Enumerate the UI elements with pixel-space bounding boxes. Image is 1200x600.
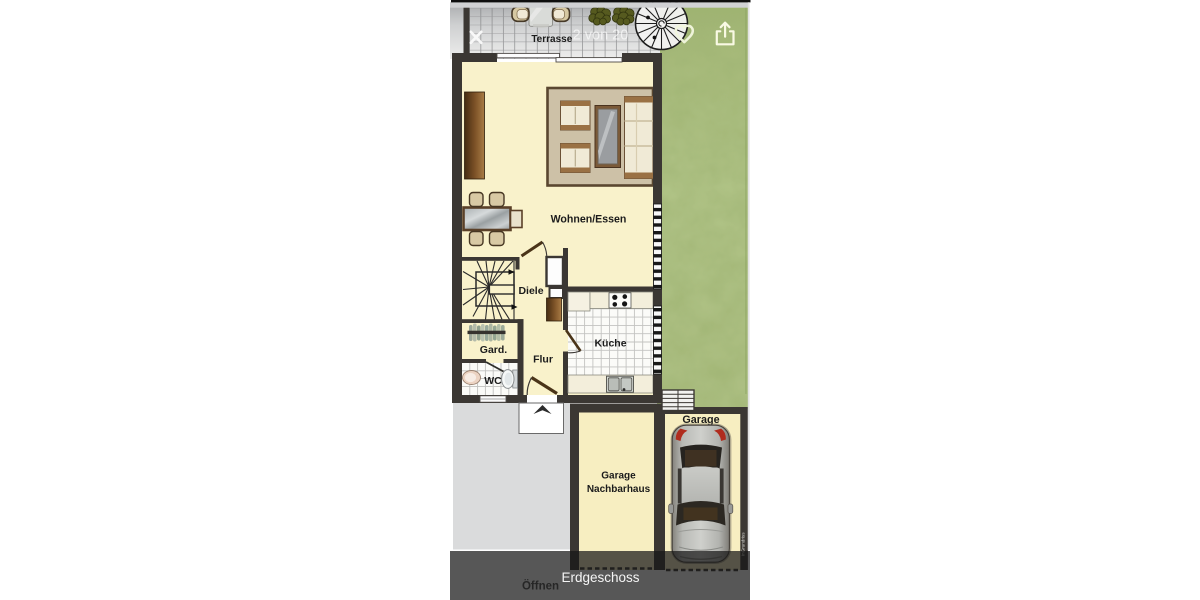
svg-text:WC: WC — [484, 375, 502, 387]
svg-text:Erdgeschoss: Erdgeschoss — [561, 570, 639, 585]
svg-text:Garage: Garage — [601, 471, 636, 482]
svg-text:Gard.: Gard. — [480, 344, 508, 356]
svg-text:Flur: Flur — [533, 354, 553, 366]
svg-text:Terrasse: Terrasse — [531, 34, 572, 45]
svg-text:Nachbarhaus: Nachbarhaus — [587, 484, 651, 495]
svg-text:Wohnen/Essen: Wohnen/Essen — [551, 214, 627, 226]
svg-text:Diele: Diele — [518, 285, 543, 297]
svg-text:Öffnen: Öffnen — [522, 579, 559, 592]
svg-text:Küche: Küche — [594, 338, 626, 350]
svg-text:2 von 20: 2 von 20 — [573, 28, 629, 44]
